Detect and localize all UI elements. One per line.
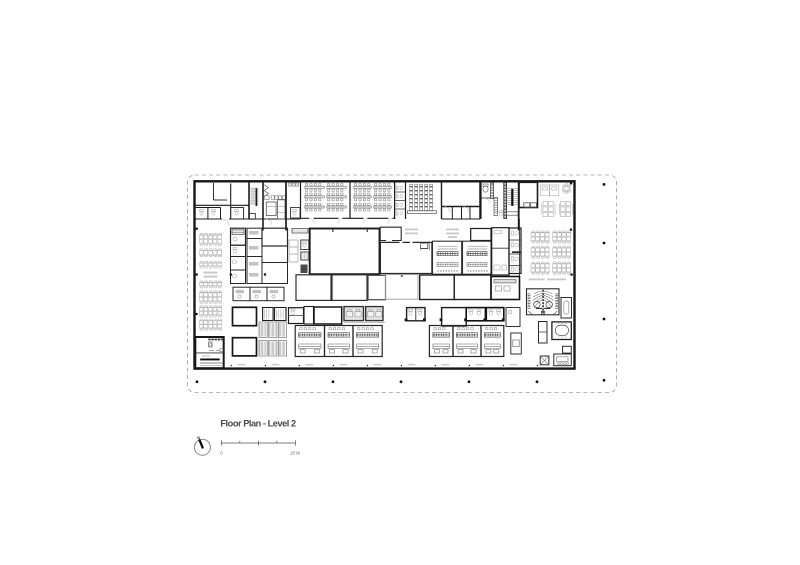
svg-text:N: N <box>197 436 200 440</box>
svg-text:Floor Plan - Level 2: Floor Plan - Level 2 <box>220 419 296 429</box>
svg-text:20 M: 20 M <box>290 451 300 456</box>
